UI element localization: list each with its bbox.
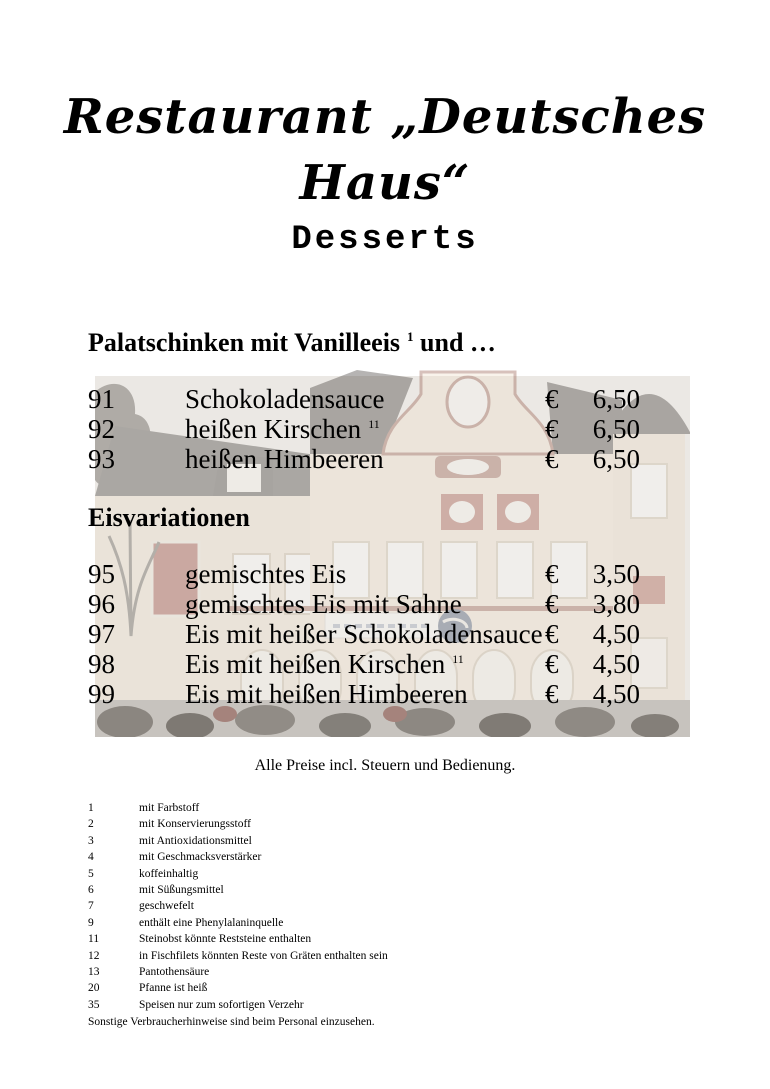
menu-item-row: 98 Eis mit heißen Kirschen11 € 4,50 — [88, 649, 640, 679]
menu-item-row: 95 gemischtes Eis € 3,50 — [88, 559, 640, 589]
menu-section: Eisvariationen 95 gemischtes Eis € 3,50 … — [88, 501, 640, 709]
menu-item-row: 92 heißen Kirschen11 € 6,50 — [88, 414, 640, 444]
menu-item-name-text: Eis mit heißer Schokoladensauce — [185, 619, 543, 649]
footnote-number: 1 — [88, 800, 139, 816]
menu-item-row: 93 heißen Himbeeren € 6,50 — [88, 444, 640, 474]
footnote-row: 20 Pfanne ist heiß — [88, 980, 688, 996]
footnote-text: in Fischfilets könnten Reste von Gräten … — [139, 948, 388, 964]
restaurant-title: Restaurant „Deutsches Haus“ — [0, 84, 770, 216]
menu-section-items: 91 Schokoladensauce € 6,50 92 heißen Kir… — [88, 384, 640, 474]
menu-item-name-text: Eis mit heißen Himbeeren — [185, 679, 468, 709]
footnote-text: Pantothensäure — [139, 964, 209, 980]
menu-section-items: 95 gemischtes Eis € 3,50 96 gemischtes E… — [88, 559, 640, 709]
menu-item-name: gemischtes Eis mit Sahne — [185, 589, 545, 619]
footnote-row: 35 Speisen nur zum sofortigen Verzehr — [88, 997, 688, 1013]
menu-item-price: 4,50 — [592, 649, 640, 679]
menu-item-price: 6,50 — [592, 444, 640, 474]
menu-item-number: 91 — [88, 384, 185, 414]
menu-item-number: 92 — [88, 414, 185, 444]
currency-symbol: € — [545, 619, 592, 649]
footnote-text: koffeinhaltig — [139, 866, 198, 882]
menu-item-name-text: heißen Himbeeren — [185, 444, 384, 474]
menu-item-name: heißen Himbeeren — [185, 444, 545, 474]
menu-item-footnote-ref: 11 — [452, 652, 464, 666]
footnotes-list: 1 mit Farbstoff 2 mit Konservierungsstof… — [88, 800, 688, 1013]
footnote-row: 7 geschwefelt — [88, 898, 688, 914]
menu-section: Palatschinken mit Vanilleeis1 und … 91 S… — [88, 326, 640, 474]
footnote-text: mit Konservierungsstoff — [139, 816, 251, 832]
currency-symbol: € — [545, 679, 592, 709]
menu-item-row: 97 Eis mit heißer Schokoladensauce € 4,5… — [88, 619, 640, 649]
menu-section-heading-text: Palatschinken mit Vanilleeis — [88, 328, 400, 357]
footnote-text: Steinobst könnte Reststeine enthalten — [139, 931, 311, 947]
footnote-number: 4 — [88, 849, 139, 865]
footnote-text: mit Antioxidationsmittel — [139, 833, 252, 849]
footnote-number: 13 — [88, 964, 139, 980]
menu-item-name: Eis mit heißer Schokoladensauce — [185, 619, 545, 649]
menu-item-name: heißen Kirschen11 — [185, 414, 545, 444]
footnote-text: enthält eine Phenylalaninquelle — [139, 915, 283, 931]
footnote-text: mit Süßungsmittel — [139, 882, 224, 898]
menu-section-heading: Eisvariationen — [88, 501, 640, 534]
menu-item-price: 4,50 — [592, 619, 640, 649]
footnote-row: 12 in Fischfilets könnten Reste von Grät… — [88, 948, 688, 964]
menu-item-price: 3,50 — [592, 559, 640, 589]
footnote-row: 1 mit Farbstoff — [88, 800, 688, 816]
menu-item-name-text: heißen Kirschen — [185, 414, 361, 444]
menu-item-name: Eis mit heißen Kirschen11 — [185, 649, 545, 679]
page-heading-desserts: Desserts — [0, 218, 770, 262]
footnote-number: 7 — [88, 898, 139, 914]
menu-section-heading: Palatschinken mit Vanilleeis1 und … — [88, 326, 640, 359]
menu-item-name: gemischtes Eis — [185, 559, 545, 589]
menu-item-row: 91 Schokoladensauce € 6,50 — [88, 384, 640, 414]
menu-item-name: Eis mit heißen Himbeeren — [185, 679, 545, 709]
menu-item-price: 4,50 — [592, 679, 640, 709]
footnote-row: 11 Steinobst könnte Reststeine enthalten — [88, 931, 688, 947]
footnote-number: 20 — [88, 980, 139, 996]
menu-item-name-text: Schokoladensauce — [185, 384, 384, 414]
footnote-number: 11 — [88, 931, 139, 947]
currency-symbol: € — [545, 649, 592, 679]
menu-item-price: 3,80 — [592, 589, 640, 619]
menu-item-name: Schokoladensauce — [185, 384, 545, 414]
menu-item-footnote-ref: 11 — [368, 417, 380, 431]
footnote-text: mit Farbstoff — [139, 800, 199, 816]
menu-section-heading-suffix: und … — [414, 328, 496, 357]
currency-symbol: € — [545, 559, 592, 589]
footnote-text: mit Geschmacksverstärker — [139, 849, 261, 865]
footnote-number: 6 — [88, 882, 139, 898]
footnote-row: 3 mit Antioxidationsmittel — [88, 833, 688, 849]
footnote-number: 3 — [88, 833, 139, 849]
menu-item-name-text: Eis mit heißen Kirschen — [185, 649, 445, 679]
footnotes: 1 mit Farbstoff 2 mit Konservierungsstof… — [88, 800, 688, 1031]
menu-item-number: 98 — [88, 649, 185, 679]
currency-symbol: € — [545, 589, 592, 619]
menu-item-number: 96 — [88, 589, 185, 619]
footnote-text: Pfanne ist heiß — [139, 980, 207, 996]
footnote-text: Speisen nur zum sofortigen Verzehr — [139, 997, 304, 1013]
menu-item-number: 97 — [88, 619, 185, 649]
menu-sections: Palatschinken mit Vanilleeis1 und … 91 S… — [88, 326, 640, 709]
footnote-number: 9 — [88, 915, 139, 931]
footnote-number: 35 — [88, 997, 139, 1013]
menu-item-price: 6,50 — [592, 384, 640, 414]
menu-section-heading-text: Eisvariationen — [88, 503, 250, 532]
currency-symbol: € — [545, 414, 592, 444]
menu-item-name-text: gemischtes Eis — [185, 559, 346, 589]
menu-item-row: 99 Eis mit heißen Himbeeren € 4,50 — [88, 679, 640, 709]
menu-item-number: 99 — [88, 679, 185, 709]
currency-symbol: € — [545, 444, 592, 474]
footnote-number: 2 — [88, 816, 139, 832]
price-note: Alle Preise incl. Steuern und Bedienung. — [0, 756, 770, 776]
footnote-row: 9 enthält eine Phenylalaninquelle — [88, 915, 688, 931]
menu-item-price: 6,50 — [592, 414, 640, 444]
menu-item-number: 93 — [88, 444, 185, 474]
menu-item-number: 95 — [88, 559, 185, 589]
footnote-row: 4 mit Geschmacksverstärker — [88, 849, 688, 865]
currency-symbol: € — [545, 384, 592, 414]
footnote-row: 6 mit Süßungsmittel — [88, 882, 688, 898]
menu-item-name-text: gemischtes Eis mit Sahne — [185, 589, 462, 619]
footnote-number: 5 — [88, 866, 139, 882]
menu-item-row: 96 gemischtes Eis mit Sahne € 3,80 — [88, 589, 640, 619]
footnote-row: 13 Pantothensäure — [88, 964, 688, 980]
footnote-row: 5 koffeinhaltig — [88, 866, 688, 882]
footnote-text: geschwefelt — [139, 898, 194, 914]
footnotes-closing: Sonstige Verbraucherhinweise sind beim P… — [88, 1014, 688, 1030]
footnote-row: 2 mit Konservierungsstoff — [88, 816, 688, 832]
menu-page: Restaurant „Deutsches Haus“ Desserts — [0, 0, 770, 1089]
footnote-number: 12 — [88, 948, 139, 964]
